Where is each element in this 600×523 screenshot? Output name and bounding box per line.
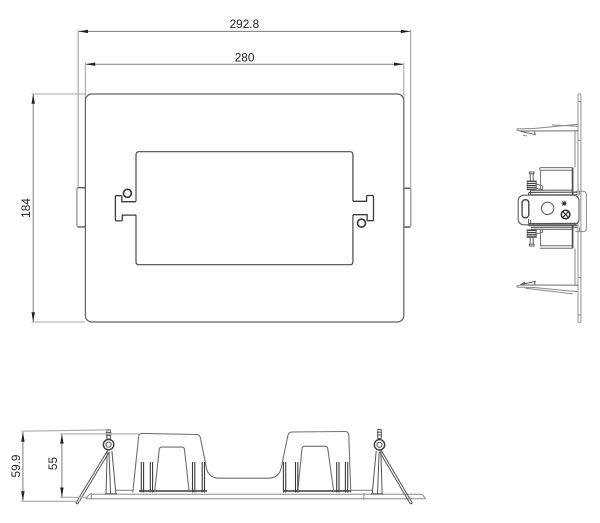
svg-text:280: 280 <box>235 50 255 64</box>
svg-text:55: 55 <box>46 457 60 471</box>
svg-text:292.8: 292.8 <box>230 17 260 31</box>
svg-text:184: 184 <box>19 198 33 218</box>
svg-text:59.9: 59.9 <box>9 455 23 478</box>
